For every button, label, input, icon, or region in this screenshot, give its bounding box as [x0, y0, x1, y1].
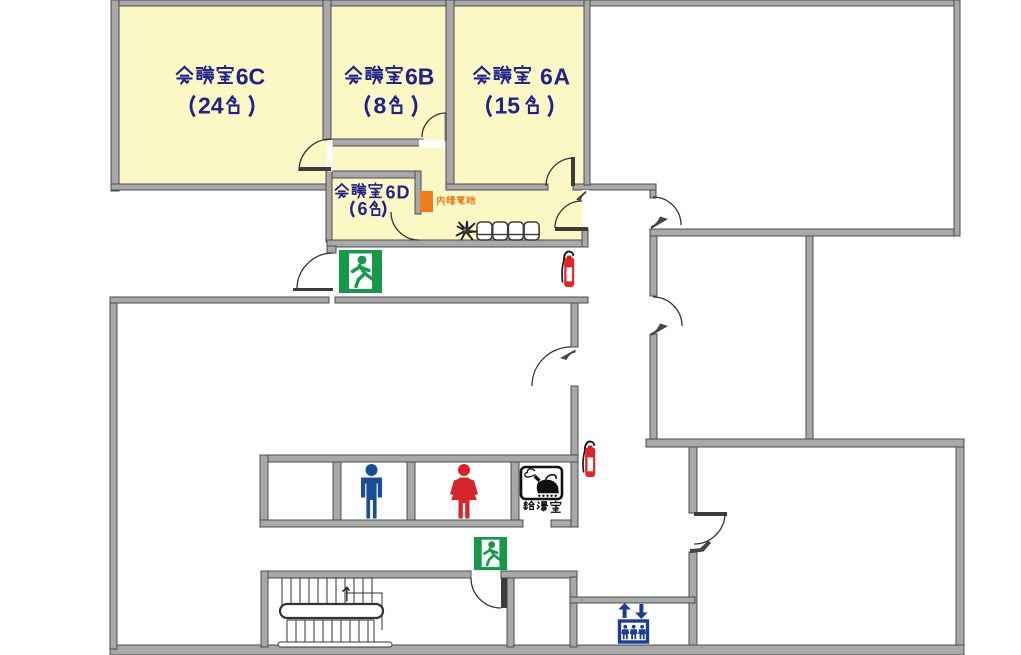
svg-text:8: 8: [374, 93, 387, 119]
svg-text:6C: 6C: [236, 64, 265, 90]
svg-text:6: 6: [386, 182, 396, 202]
svg-text:6: 6: [540, 64, 553, 90]
svg-text:6: 6: [358, 199, 368, 219]
svg-text:6B: 6B: [405, 64, 434, 90]
svg-text:24: 24: [198, 93, 224, 119]
svg-text:15: 15: [495, 93, 521, 119]
svg-text:D: D: [397, 182, 410, 202]
svg-text:A: A: [554, 64, 571, 90]
